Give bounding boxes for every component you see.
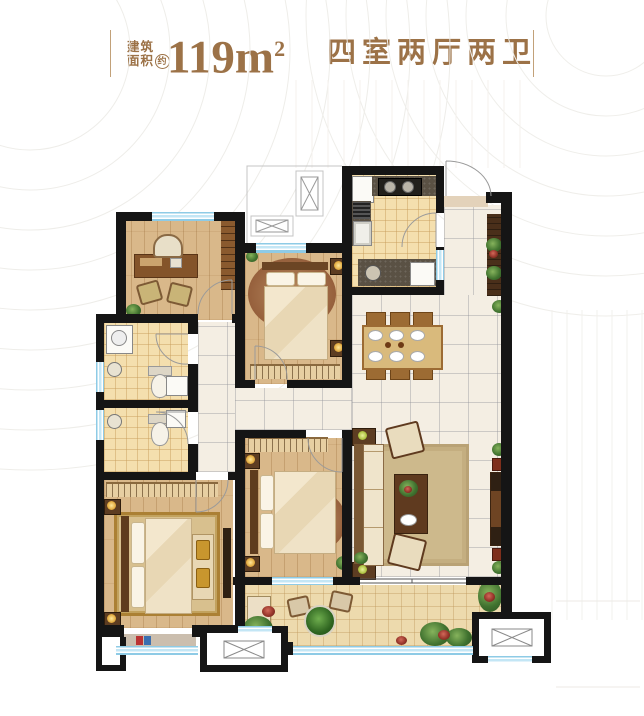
study-door-arc [198,280,232,314]
elevator-shaft-x-box [251,216,293,236]
entry-door-arc [446,161,491,196]
plan-symbols-overlay [0,0,644,716]
stair-shaft-x-box [296,171,323,216]
master-door-arc [196,480,228,512]
balcony-sliding-door [360,579,466,583]
bath1-door-arc [156,334,188,364]
bath2-door-arc [156,412,188,444]
rightbox-x-symbol [492,629,532,646]
bedroom3-door-arc [308,438,342,472]
midbox-x-symbol [224,641,264,658]
kitchen-door-arc [402,213,436,247]
bedroom2-door-arc [255,346,287,380]
floorplan-page: 建筑 面积约 119m2 四室两厅两卫 [0,0,644,716]
